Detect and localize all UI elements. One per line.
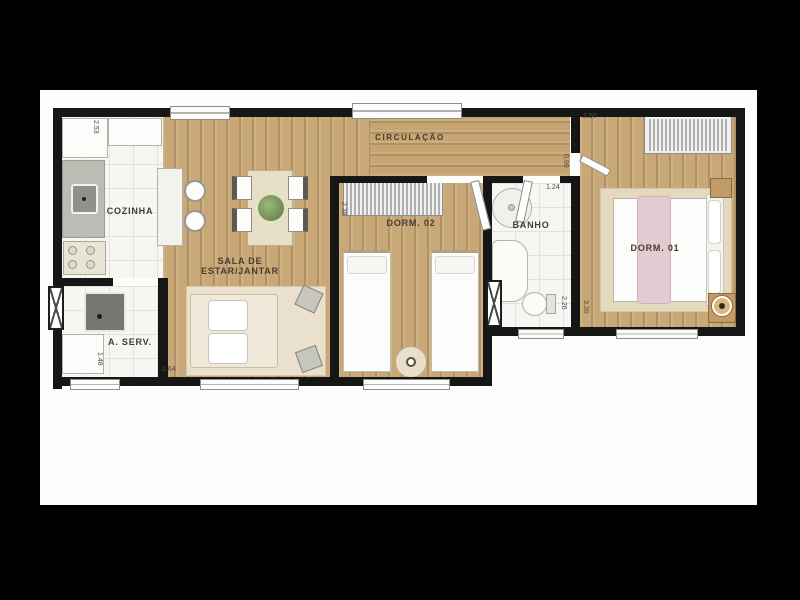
dim-dorm02-side: 2.38 (340, 202, 347, 216)
label-cozinha: COZINHA (98, 206, 162, 216)
kitchen-sink-drain (82, 197, 86, 201)
window-dorm01 (616, 329, 698, 339)
window-banho (518, 329, 564, 339)
label-dorm02: DORM. 02 (378, 218, 444, 228)
sofa-cushion (208, 333, 248, 364)
laundry-tank-drain (97, 314, 102, 319)
dim-dorm01-top: 2.50 (583, 113, 597, 120)
service-door-hatch (48, 286, 64, 330)
dining-chair (232, 176, 252, 200)
window-top-circulacao (352, 103, 462, 119)
label-circulacao: CIRCULAÇÃO (345, 133, 475, 142)
label-sala-line1: SALA DE (190, 256, 290, 266)
bar-stool (184, 210, 206, 232)
window-top-sala (170, 106, 230, 120)
wall-left (53, 108, 62, 389)
label-dorm01: DORM. 01 (622, 243, 688, 253)
dining-chair (288, 208, 308, 232)
wall-dorm02-top (330, 176, 427, 183)
nightstand-lamp (406, 357, 416, 367)
wall-cozinha-aserv (53, 278, 113, 286)
laundry-tank (84, 292, 126, 332)
kitchen-counter-top (108, 118, 162, 146)
dim-dorm01-door: 0.90 (562, 154, 569, 168)
label-aserv: A. SERV. (98, 337, 162, 347)
dining-chair (232, 208, 252, 232)
bed-pillow (347, 256, 387, 274)
toilet-tank (546, 294, 556, 314)
label-sala-line2: ESTAR/JANTAR (190, 266, 290, 276)
wall-vestibule (571, 108, 580, 153)
toilet-bowl (522, 292, 547, 316)
dim-dorm01-height: 3.30 (582, 300, 589, 314)
kitchen-cabinet-corner (62, 118, 108, 158)
table-plant (258, 195, 284, 221)
floor-plan-image: COZINHA A. SERV. SALA DE ESTAR/JANTAR CI… (0, 0, 800, 600)
bathroom-sink-drain (508, 204, 515, 211)
door-opening-dorm01 (571, 153, 580, 176)
dim-banho-width: 1.24 (546, 184, 560, 191)
lamp-center (719, 303, 725, 309)
wall-dorm02-left (330, 176, 339, 386)
plan-canvas: COZINHA A. SERV. SALA DE ESTAR/JANTAR CI… (40, 90, 757, 505)
wall-banho-dorm01 (571, 176, 580, 336)
dim-banho-height: 2.26 (560, 296, 567, 310)
bed-pillow (708, 250, 721, 294)
stove-burner (86, 246, 95, 255)
wall-banho-top-left (483, 176, 523, 183)
shaft-hatch (486, 280, 502, 327)
window-dorm02 (363, 379, 450, 390)
dim-aserv-height: 1.48 (96, 352, 103, 366)
window-sala (200, 379, 299, 390)
bed-pillow (708, 200, 721, 244)
dim-aserv-width: 1.64 (162, 366, 176, 373)
dim-cozinha-depth: 2.53 (92, 120, 99, 134)
shelf-top-right (710, 178, 732, 198)
bed-pillow (435, 256, 475, 274)
stove-burner (86, 260, 95, 269)
wardrobe-dorm01 (645, 117, 731, 153)
window-aserv (70, 379, 120, 390)
stove-burner (68, 246, 77, 255)
stove-burner (68, 260, 77, 269)
sofa-cushion (208, 300, 248, 331)
bar-stool (184, 180, 206, 202)
label-sala: SALA DE ESTAR/JANTAR (190, 256, 290, 276)
dining-chair (288, 176, 308, 200)
wall-right (736, 108, 745, 336)
label-banho: BANHO (498, 220, 564, 230)
wardrobe-dorm02 (343, 182, 443, 216)
